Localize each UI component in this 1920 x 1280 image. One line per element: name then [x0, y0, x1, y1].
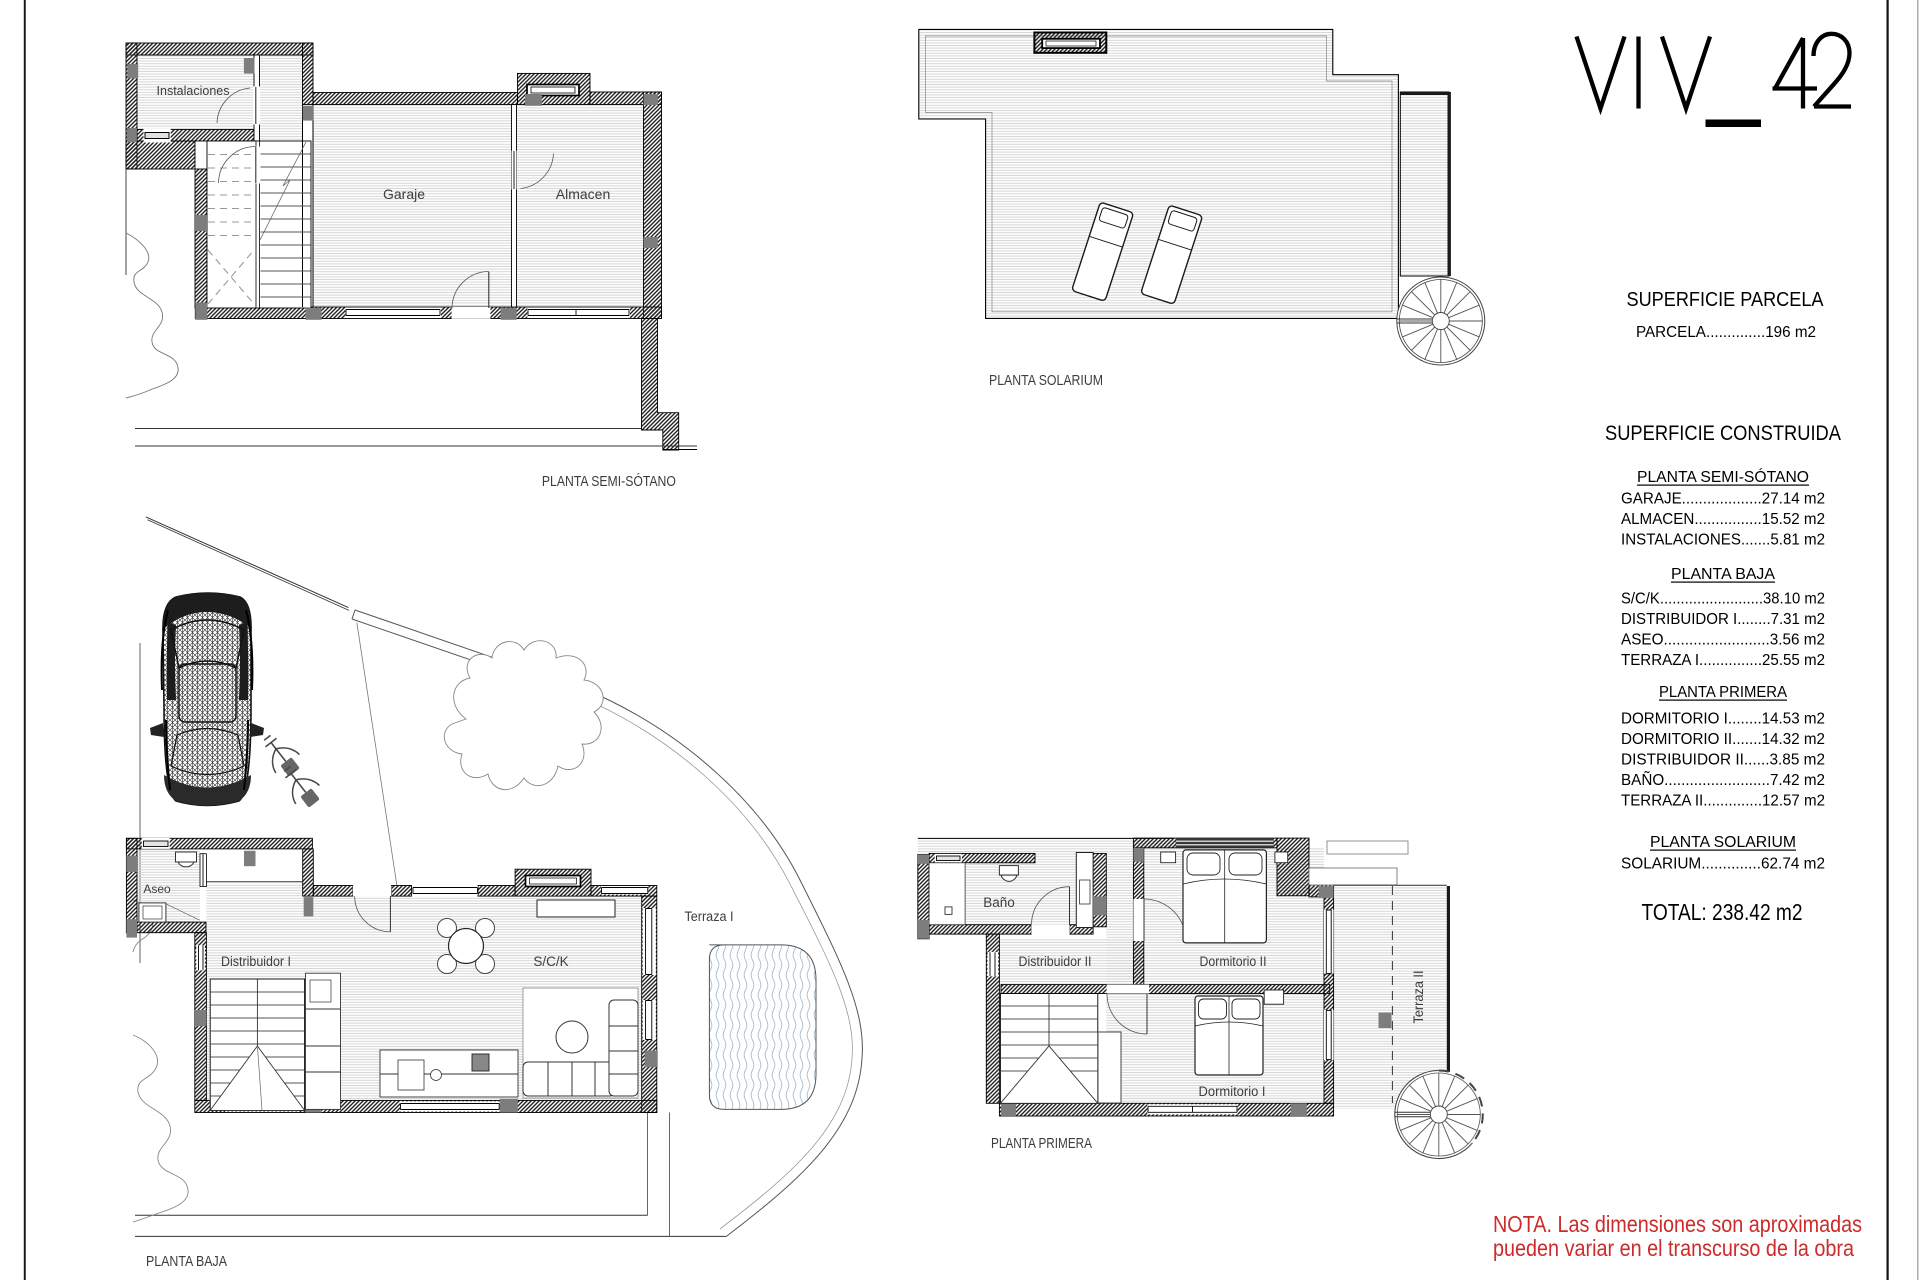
svg-text:TERRAZA II..............12.57: TERRAZA II..............12.57 m2	[1621, 793, 1825, 810]
svg-text:Dormitorio II: Dormitorio II	[1200, 954, 1267, 969]
svg-text:Baño: Baño	[983, 895, 1015, 910]
svg-text:S/C/K: S/C/K	[533, 954, 568, 969]
svg-text:Terraza I: Terraza I	[685, 909, 734, 924]
svg-text:SOLARIUM..............62.74 m2: SOLARIUM..............62.74 m2	[1621, 856, 1825, 873]
svg-text:TERRAZA I...............25.55: TERRAZA I...............25.55 m2	[1621, 652, 1825, 669]
svg-text:PLANTA BAJA: PLANTA BAJA	[1671, 566, 1775, 583]
svg-text:INSTALACIONES.......5.81 m2: INSTALACIONES.......5.81 m2	[1621, 532, 1825, 549]
svg-text:PLANTA PRIMERA: PLANTA PRIMERA	[1659, 684, 1787, 701]
svg-text:PLANTA SOLARIUM: PLANTA SOLARIUM	[989, 372, 1103, 389]
svg-text:Distribuidor II: Distribuidor II	[1019, 954, 1092, 969]
svg-text:Dormitorio I: Dormitorio I	[1199, 1084, 1266, 1099]
svg-text:DORMITORIO I........14.53 m2: DORMITORIO I........14.53 m2	[1621, 711, 1825, 728]
svg-text:Almacen: Almacen	[556, 186, 610, 202]
svg-text:SUPERFICIE PARCELA: SUPERFICIE PARCELA	[1627, 288, 1824, 311]
svg-text:Aseo: Aseo	[143, 882, 171, 896]
svg-text:PLANTA SEMI-SÓTANO: PLANTA SEMI-SÓTANO	[1637, 467, 1809, 486]
svg-text:PLANTA SEMI-SÓTANO: PLANTA SEMI-SÓTANO	[542, 473, 676, 490]
svg-text:Terraza II: Terraza II	[1411, 971, 1426, 1024]
svg-text:Distribuidor I: Distribuidor I	[221, 954, 291, 969]
svg-text:PLANTA BAJA: PLANTA BAJA	[146, 1253, 227, 1270]
svg-text:GARAJE...................27.14: GARAJE...................27.14 m2	[1621, 491, 1825, 508]
svg-text:DORMITORIO II.......14.32 m2: DORMITORIO II.......14.32 m2	[1621, 731, 1825, 748]
svg-text:NOTA. Las dimensiones son apro: NOTA. Las dimensiones son aproximadas	[1493, 1211, 1862, 1237]
svg-text:Garaje: Garaje	[383, 186, 425, 202]
svg-text:PARCELA..............196 m2: PARCELA..............196 m2	[1636, 324, 1816, 341]
svg-text:ASEO.........................3: ASEO.........................3.56 m2	[1621, 632, 1825, 649]
svg-text:SUPERFICIE CONSTRUIDA: SUPERFICIE CONSTRUIDA	[1605, 422, 1841, 445]
svg-text:PLANTA SOLARIUM: PLANTA SOLARIUM	[1650, 834, 1796, 851]
svg-text:pueden variar en el transcurso: pueden variar en el transcurso de la obr…	[1493, 1235, 1855, 1261]
svg-text:S/C/K.........................: S/C/K.........................38.10 m2	[1621, 591, 1825, 608]
svg-text:TOTAL: 238.42 m2: TOTAL: 238.42 m2	[1642, 899, 1803, 925]
svg-text:PLANTA PRIMERA: PLANTA PRIMERA	[991, 1135, 1092, 1152]
svg-text:Instalaciones: Instalaciones	[157, 84, 230, 98]
svg-text:DISTRIBUIDOR II......3.85 m2: DISTRIBUIDOR II......3.85 m2	[1621, 752, 1825, 769]
svg-text:DISTRIBUIDOR I........7.31 m2: DISTRIBUIDOR I........7.31 m2	[1621, 611, 1825, 628]
svg-text:BAÑO.........................7: BAÑO.........................7.42 m2	[1621, 769, 1825, 789]
svg-text:ALMACEN................15.52 m: ALMACEN................15.52 m2	[1621, 511, 1825, 528]
